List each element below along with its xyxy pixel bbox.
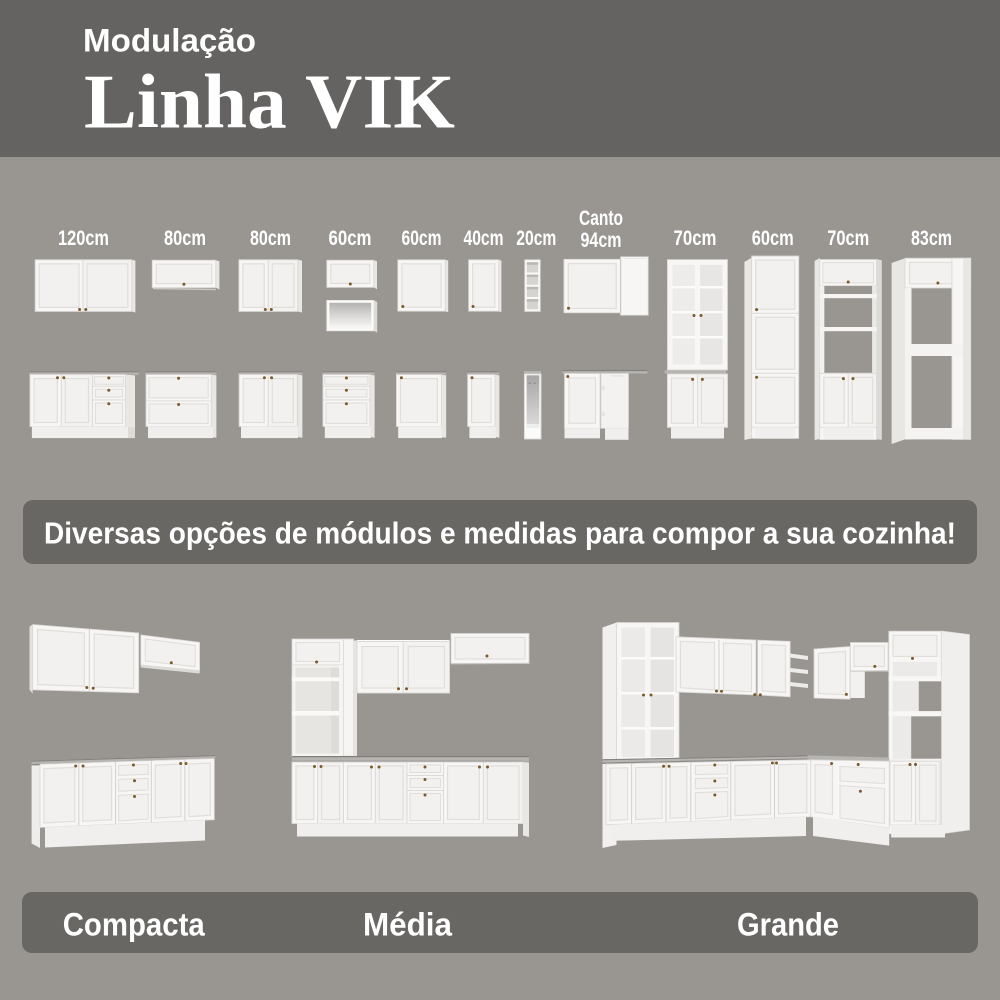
- svg-text:94cm: 94cm: [581, 229, 622, 252]
- svg-text:40cm: 40cm: [464, 227, 504, 250]
- svg-text:Canto: Canto: [579, 207, 623, 230]
- svg-text:Diversas opções de módulos e m: Diversas opções de módulos e medidas par…: [44, 516, 956, 551]
- svg-text:70cm: 70cm: [674, 227, 717, 250]
- svg-text:60cm: 60cm: [402, 227, 442, 250]
- svg-text:60cm: 60cm: [752, 227, 794, 250]
- svg-text:Compacta: Compacta: [63, 907, 206, 943]
- svg-text:83cm: 83cm: [911, 227, 952, 250]
- svg-text:80cm: 80cm: [164, 227, 206, 250]
- svg-text:20cm: 20cm: [516, 227, 556, 250]
- svg-text:80cm: 80cm: [250, 227, 291, 250]
- svg-text:60cm: 60cm: [329, 227, 372, 250]
- svg-text:Média: Média: [363, 907, 453, 943]
- svg-text:Linha VIK: Linha VIK: [84, 59, 455, 145]
- svg-text:70cm: 70cm: [827, 227, 869, 250]
- svg-text:Grande: Grande: [737, 907, 839, 943]
- svg-text:Modulação: Modulação: [83, 23, 256, 59]
- svg-text:120cm: 120cm: [58, 227, 109, 250]
